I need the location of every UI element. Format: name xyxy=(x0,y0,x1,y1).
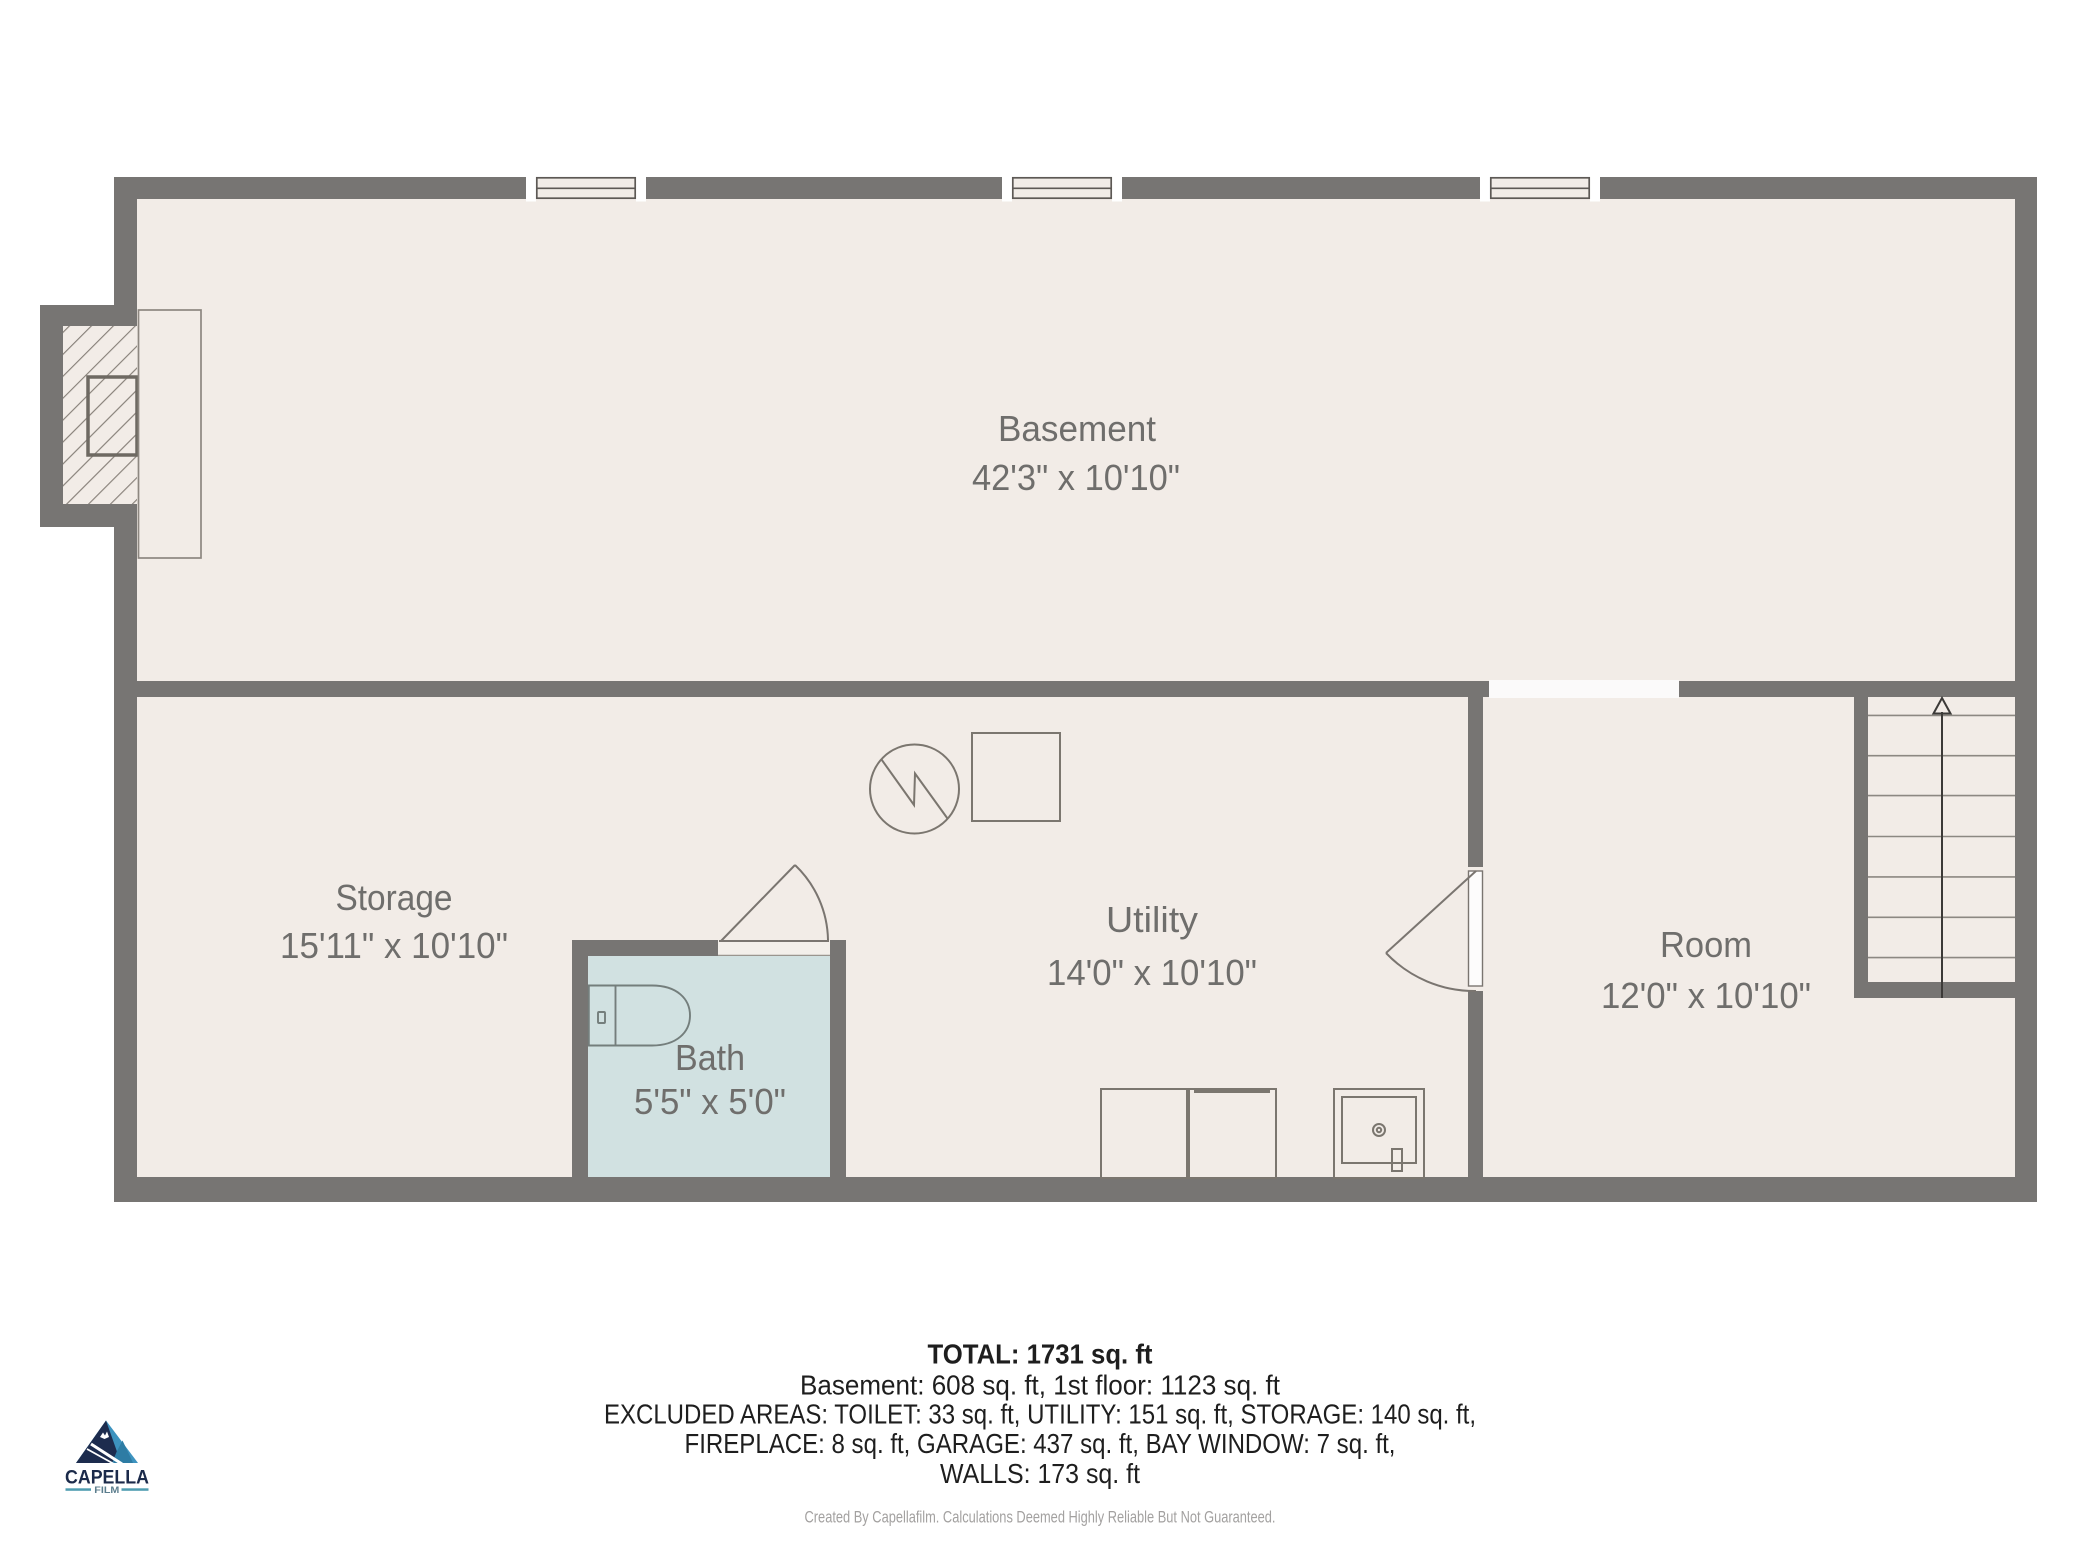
svg-text:42'3" x 10'10": 42'3" x 10'10" xyxy=(972,457,1180,498)
svg-text:Utility: Utility xyxy=(1106,899,1198,940)
svg-text:14'0" x 10'10": 14'0" x 10'10" xyxy=(1047,952,1257,993)
svg-text:Storage: Storage xyxy=(336,877,453,918)
svg-text:EXCLUDED AREAS: TOILET: 33 sq.: EXCLUDED AREAS: TOILET: 33 sq. ft, UTILI… xyxy=(604,1398,1476,1429)
svg-text:FILM: FILM xyxy=(94,1485,119,1496)
svg-text:Room: Room xyxy=(1660,924,1752,965)
svg-text:15'11" x 10'10": 15'11" x 10'10" xyxy=(280,925,508,966)
svg-text:Basement: 608 sq. ft, 1st floo: Basement: 608 sq. ft, 1st floor: 1123 sq… xyxy=(800,1370,1280,1401)
svg-text:Created By Capellafilm. Calcul: Created By Capellafilm. Calculations Dee… xyxy=(805,1508,1276,1527)
svg-text:12'0" x 10'10": 12'0" x 10'10" xyxy=(1601,975,1811,1016)
svg-text:5'5" x 5'0": 5'5" x 5'0" xyxy=(634,1081,786,1122)
svg-text:WALLS: 173 sq. ft: WALLS: 173 sq. ft xyxy=(940,1458,1140,1489)
svg-text:TOTAL: 1731 sq. ft: TOTAL: 1731 sq. ft xyxy=(928,1339,1153,1370)
svg-text:FIREPLACE: 8 sq. ft, GARAGE: 4: FIREPLACE: 8 sq. ft, GARAGE: 437 sq. ft,… xyxy=(685,1428,1396,1459)
svg-text:Bath: Bath xyxy=(675,1037,745,1078)
svg-text:Basement: Basement xyxy=(998,408,1156,449)
